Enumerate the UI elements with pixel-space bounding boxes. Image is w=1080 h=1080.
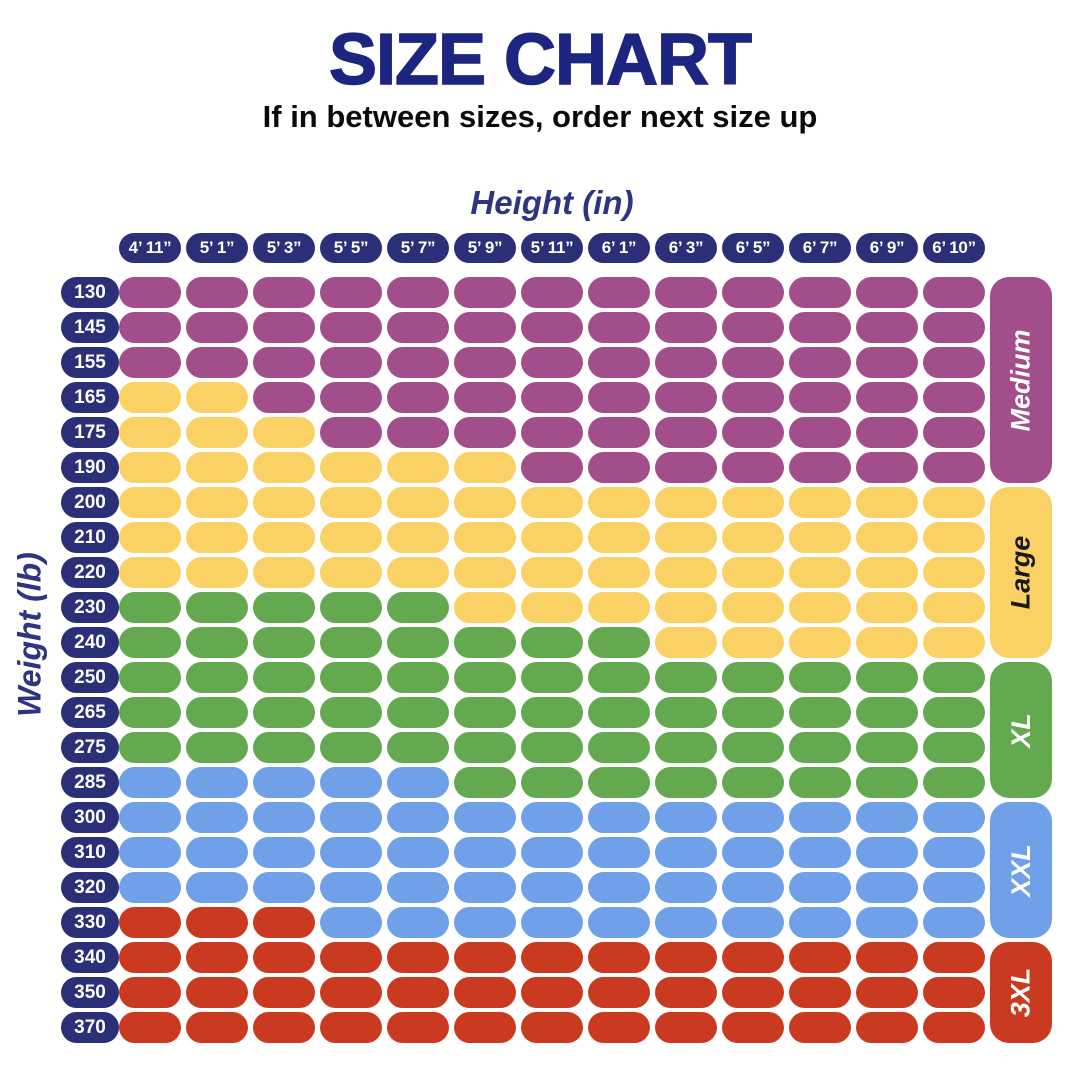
- size-cell: [186, 452, 248, 483]
- size-cell: [186, 382, 248, 413]
- size-cell: [320, 662, 382, 693]
- size-cell: [923, 312, 985, 343]
- size-cell: [923, 347, 985, 378]
- size-cell: [588, 697, 650, 728]
- size-cell: [789, 802, 851, 833]
- size-cell: [454, 767, 516, 798]
- height-tick: 6’ 5”: [722, 233, 784, 263]
- size-cell: [387, 942, 449, 973]
- size-cell: [387, 907, 449, 938]
- size-cell: [722, 557, 784, 588]
- size-cell: [588, 1012, 650, 1043]
- size-cell: [119, 872, 181, 903]
- size-cell: [454, 662, 516, 693]
- size-cell: [789, 907, 851, 938]
- size-cell: [454, 312, 516, 343]
- weight-tick: 165: [61, 382, 119, 413]
- size-cell: [119, 767, 181, 798]
- size-cell: [186, 592, 248, 623]
- height-tick: 5’ 3”: [253, 233, 315, 263]
- x-axis-title: Height (in): [119, 184, 985, 222]
- size-cell: [454, 487, 516, 518]
- size-cell: [387, 557, 449, 588]
- size-cell: [789, 382, 851, 413]
- size-cell: [856, 487, 918, 518]
- size-cell: [320, 1012, 382, 1043]
- size-cell: [923, 767, 985, 798]
- size-cell: [387, 732, 449, 763]
- size-cell: [789, 452, 851, 483]
- size-cell: [655, 347, 717, 378]
- size-cell: [655, 557, 717, 588]
- size-cell: [856, 1012, 918, 1043]
- size-cell: [789, 732, 851, 763]
- size-cell: [253, 522, 315, 553]
- size-cell: [588, 802, 650, 833]
- size-cell: [253, 312, 315, 343]
- size-cell: [253, 942, 315, 973]
- size-cell: [119, 907, 181, 938]
- size-cell: [722, 977, 784, 1008]
- size-cell: [789, 312, 851, 343]
- size-cell: [454, 592, 516, 623]
- legend-item-xl: XL: [990, 662, 1052, 798]
- size-cell: [655, 417, 717, 448]
- height-tick: 4’ 11”: [119, 233, 181, 263]
- size-cell: [454, 522, 516, 553]
- size-cell: [789, 627, 851, 658]
- weight-tick-column: 1301451551651751902002102202302402502652…: [61, 277, 119, 1043]
- size-cell: [186, 732, 248, 763]
- size-cell: [655, 382, 717, 413]
- size-cell: [521, 662, 583, 693]
- size-cell: [186, 522, 248, 553]
- size-cell: [521, 942, 583, 973]
- size-cell: [454, 732, 516, 763]
- weight-tick: 300: [61, 802, 119, 833]
- size-cell: [856, 697, 918, 728]
- size-cell: [387, 662, 449, 693]
- size-cell: [588, 872, 650, 903]
- size-cell: [320, 697, 382, 728]
- legend-item-label: Medium: [1006, 329, 1037, 431]
- size-cell: [387, 977, 449, 1008]
- size-cell: [186, 872, 248, 903]
- size-cell: [722, 907, 784, 938]
- size-cell: [186, 942, 248, 973]
- size-cell: [588, 977, 650, 1008]
- size-cell: [320, 802, 382, 833]
- size-cell: [521, 907, 583, 938]
- height-tick: 5’ 5”: [320, 233, 382, 263]
- size-cell: [387, 872, 449, 903]
- legend-item-xxl: XXL: [990, 802, 1052, 938]
- size-cell: [186, 417, 248, 448]
- size-cell: [320, 557, 382, 588]
- height-tick: 6’ 3”: [655, 233, 717, 263]
- size-cell: [320, 627, 382, 658]
- size-cell: [856, 277, 918, 308]
- weight-tick: 240: [61, 627, 119, 658]
- weight-tick: 155: [61, 347, 119, 378]
- size-cell: [119, 487, 181, 518]
- size-cell: [119, 557, 181, 588]
- page-title: SIZE CHART: [0, 24, 1080, 96]
- size-cell: [119, 417, 181, 448]
- size-cell: [253, 662, 315, 693]
- size-cell: [588, 627, 650, 658]
- weight-tick: 370: [61, 1012, 119, 1043]
- size-cell: [320, 767, 382, 798]
- size-cell: [722, 487, 784, 518]
- size-cell: [454, 417, 516, 448]
- size-cell: [521, 592, 583, 623]
- size-cell: [320, 487, 382, 518]
- size-cell: [320, 382, 382, 413]
- size-cell: [856, 732, 918, 763]
- size-cell: [454, 277, 516, 308]
- size-cell: [387, 767, 449, 798]
- size-cell: [722, 697, 784, 728]
- size-cell: [253, 452, 315, 483]
- size-cell: [722, 417, 784, 448]
- legend-item-label: XL: [1005, 713, 1036, 748]
- size-cell: [588, 557, 650, 588]
- weight-tick: 230: [61, 592, 119, 623]
- size-cell: [387, 592, 449, 623]
- size-cell: [253, 767, 315, 798]
- size-cell: [253, 1012, 315, 1043]
- size-cell: [186, 487, 248, 518]
- size-cell: [253, 627, 315, 658]
- size-cell: [320, 522, 382, 553]
- size-cell: [521, 487, 583, 518]
- size-cell: [454, 627, 516, 658]
- size-cell: [320, 732, 382, 763]
- size-cell: [387, 487, 449, 518]
- size-cell: [655, 522, 717, 553]
- size-cell: [655, 907, 717, 938]
- size-cell: [856, 872, 918, 903]
- size-cell: [253, 802, 315, 833]
- size-cell: [186, 557, 248, 588]
- size-cell: [655, 452, 717, 483]
- size-cell: [588, 732, 650, 763]
- size-cell: [588, 312, 650, 343]
- size-cell: [789, 277, 851, 308]
- size-cell: [655, 627, 717, 658]
- size-cell: [923, 662, 985, 693]
- page-subtitle: If in between sizes, order next size up: [0, 100, 1080, 134]
- size-cell: [789, 592, 851, 623]
- size-cell: [320, 417, 382, 448]
- size-cell: [186, 627, 248, 658]
- weight-tick: 320: [61, 872, 119, 903]
- size-cell: [655, 1012, 717, 1043]
- size-cell: [588, 942, 650, 973]
- size-cell: [722, 382, 784, 413]
- size-cell: [253, 277, 315, 308]
- size-cell: [253, 557, 315, 588]
- weight-tick: 340: [61, 942, 119, 973]
- size-cell: [521, 312, 583, 343]
- size-cell: [521, 627, 583, 658]
- legend-item-medium: Medium: [990, 277, 1052, 483]
- size-cell: [789, 662, 851, 693]
- size-cell: [722, 592, 784, 623]
- size-cell: [387, 312, 449, 343]
- size-cell: [320, 347, 382, 378]
- size-cell: [856, 312, 918, 343]
- weight-tick: 220: [61, 557, 119, 588]
- size-cell: [655, 697, 717, 728]
- size-cell: [655, 662, 717, 693]
- size-cell: [454, 802, 516, 833]
- size-cell: [387, 382, 449, 413]
- size-cell: [588, 277, 650, 308]
- size-cell: [655, 872, 717, 903]
- size-cell: [923, 732, 985, 763]
- size-cell: [923, 802, 985, 833]
- size-cell: [655, 837, 717, 868]
- size-cell: [119, 662, 181, 693]
- size-cell: [856, 347, 918, 378]
- size-cell: [655, 312, 717, 343]
- height-tick: 6’ 10”: [923, 233, 985, 263]
- size-cell: [856, 417, 918, 448]
- size-cell: [320, 312, 382, 343]
- size-cell: [923, 522, 985, 553]
- size-cell: [454, 557, 516, 588]
- weight-tick: 190: [61, 452, 119, 483]
- legend-item-large: Large: [990, 487, 1052, 658]
- size-cell: [253, 347, 315, 378]
- size-cell: [454, 837, 516, 868]
- size-cell: [320, 592, 382, 623]
- height-tick: 6’ 9”: [856, 233, 918, 263]
- size-cell: [923, 417, 985, 448]
- size-cell: [521, 277, 583, 308]
- size-cell: [722, 452, 784, 483]
- size-cell: [722, 522, 784, 553]
- size-cell: [521, 977, 583, 1008]
- size-cell: [722, 767, 784, 798]
- size-cell: [923, 627, 985, 658]
- size-cell: [521, 767, 583, 798]
- size-cell: [454, 452, 516, 483]
- size-cell: [923, 592, 985, 623]
- size-cell: [320, 837, 382, 868]
- size-cell: [186, 1012, 248, 1043]
- size-cell: [722, 872, 784, 903]
- size-cell: [856, 382, 918, 413]
- size-cell: [454, 942, 516, 973]
- size-cell: [387, 802, 449, 833]
- size-cell: [253, 732, 315, 763]
- size-cell: [856, 837, 918, 868]
- height-tick: 5’ 9”: [454, 233, 516, 263]
- size-cell: [521, 557, 583, 588]
- size-cell: [588, 907, 650, 938]
- size-cell: [856, 522, 918, 553]
- size-cell: [923, 907, 985, 938]
- size-cell: [387, 347, 449, 378]
- size-cell: [923, 557, 985, 588]
- size-cell: [119, 347, 181, 378]
- size-cell: [454, 1012, 516, 1043]
- size-cell: [119, 837, 181, 868]
- size-cell: [387, 277, 449, 308]
- size-cell: [588, 487, 650, 518]
- size-cell: [186, 767, 248, 798]
- size-cell: [119, 382, 181, 413]
- size-cell: [320, 907, 382, 938]
- size-cell: [320, 452, 382, 483]
- size-cell: [186, 312, 248, 343]
- height-tick: 5’ 11”: [521, 233, 583, 263]
- size-cell: [387, 417, 449, 448]
- height-tick: 5’ 1”: [186, 233, 248, 263]
- size-cell: [119, 977, 181, 1008]
- size-cell: [789, 557, 851, 588]
- size-cell: [923, 382, 985, 413]
- weight-tick: 200: [61, 487, 119, 518]
- size-cell: [588, 382, 650, 413]
- size-cell: [789, 942, 851, 973]
- size-cell: [856, 592, 918, 623]
- size-cell: [923, 487, 985, 518]
- height-tick: 6’ 1”: [588, 233, 650, 263]
- size-cell: [454, 872, 516, 903]
- size-cell: [119, 1012, 181, 1043]
- height-tick: 6’ 7”: [789, 233, 851, 263]
- size-cell: [655, 802, 717, 833]
- size-cell: [655, 277, 717, 308]
- size-cell: [655, 942, 717, 973]
- size-cell: [119, 277, 181, 308]
- size-cell: [253, 837, 315, 868]
- height-tick-row: 4’ 11”5’ 1”5’ 3”5’ 5”5’ 7”5’ 9”5’ 11”6’ …: [119, 233, 985, 263]
- size-cell: [722, 1012, 784, 1043]
- size-cell: [320, 872, 382, 903]
- size-cell: [588, 522, 650, 553]
- size-cell: [923, 872, 985, 903]
- size-cell: [253, 907, 315, 938]
- size-cell: [119, 592, 181, 623]
- size-cell: [722, 802, 784, 833]
- weight-tick: 210: [61, 522, 119, 553]
- size-cell: [856, 767, 918, 798]
- size-cell: [521, 522, 583, 553]
- weight-tick: 285: [61, 767, 119, 798]
- size-cell: [320, 277, 382, 308]
- size-cell: [789, 837, 851, 868]
- size-cell: [588, 837, 650, 868]
- size-cell: [454, 382, 516, 413]
- size-cell: [856, 802, 918, 833]
- size-cell: [186, 697, 248, 728]
- size-cell: [856, 977, 918, 1008]
- size-cell: [521, 802, 583, 833]
- size-cell: [454, 697, 516, 728]
- size-cell: [387, 522, 449, 553]
- size-cell: [186, 662, 248, 693]
- size-cell: [454, 347, 516, 378]
- size-cell: [521, 452, 583, 483]
- size-cell: [320, 977, 382, 1008]
- size-cell: [521, 837, 583, 868]
- size-cell: [186, 907, 248, 938]
- size-cell: [856, 627, 918, 658]
- size-cell: [119, 942, 181, 973]
- size-cell: [253, 417, 315, 448]
- size-cell: [655, 977, 717, 1008]
- size-cell: [789, 872, 851, 903]
- weight-tick: 330: [61, 907, 119, 938]
- size-cell: [119, 627, 181, 658]
- size-cell: [856, 452, 918, 483]
- size-cell: [119, 697, 181, 728]
- size-cell: [789, 347, 851, 378]
- size-cell: [253, 382, 315, 413]
- size-cell: [320, 942, 382, 973]
- size-cell: [186, 802, 248, 833]
- size-cell: [521, 697, 583, 728]
- size-cell: [722, 277, 784, 308]
- size-cell: [186, 277, 248, 308]
- size-cell: [789, 697, 851, 728]
- size-cell: [789, 522, 851, 553]
- size-cell: [186, 837, 248, 868]
- size-cell: [789, 1012, 851, 1043]
- size-cell: [119, 522, 181, 553]
- weight-tick: 175: [61, 417, 119, 448]
- legend-item-3xl: 3XL: [990, 942, 1052, 1043]
- legend-item-label: XXL: [1005, 844, 1036, 897]
- size-cell: [186, 977, 248, 1008]
- size-cell: [588, 347, 650, 378]
- size-cell: [789, 767, 851, 798]
- size-cell: [655, 592, 717, 623]
- weight-tick: 145: [61, 312, 119, 343]
- weight-tick: 250: [61, 662, 119, 693]
- weight-tick: 265: [61, 697, 119, 728]
- size-cell: [856, 557, 918, 588]
- y-axis-title: Weight (lb): [12, 547, 49, 723]
- size-cell: [923, 942, 985, 973]
- size-cell: [923, 1012, 985, 1043]
- size-cell: [253, 872, 315, 903]
- size-cell: [387, 697, 449, 728]
- size-cell: [923, 277, 985, 308]
- legend-item-label: Large: [1006, 536, 1037, 610]
- size-cell: [387, 627, 449, 658]
- size-cell: [454, 977, 516, 1008]
- size-cell: [119, 312, 181, 343]
- size-cell: [722, 347, 784, 378]
- size-cell: [253, 697, 315, 728]
- size-cell: [923, 977, 985, 1008]
- size-cell: [655, 767, 717, 798]
- size-cell: [923, 697, 985, 728]
- size-cell: [722, 732, 784, 763]
- size-cell: [722, 837, 784, 868]
- size-cell: [588, 767, 650, 798]
- weight-tick: 275: [61, 732, 119, 763]
- size-cell: [722, 662, 784, 693]
- size-cell: [454, 907, 516, 938]
- size-cell: [387, 1012, 449, 1043]
